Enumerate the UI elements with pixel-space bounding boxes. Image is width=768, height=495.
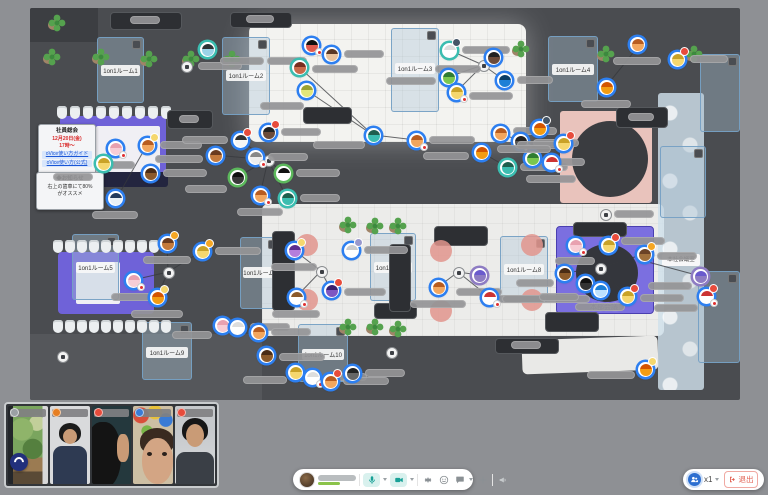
mic-off-badge <box>493 300 501 308</box>
chair <box>113 240 123 253</box>
user-name-pill <box>155 155 203 163</box>
status-badge <box>160 285 169 294</box>
mic-off-badge <box>137 283 145 291</box>
room-name-label: 1on1ルーム9 <box>146 347 188 358</box>
chair <box>70 106 80 119</box>
room-name-label: 1on1ルーム8 <box>504 264 545 275</box>
chair <box>149 320 159 333</box>
user-avatar[interactable] <box>108 191 123 206</box>
avatar-face <box>443 72 455 84</box>
status-badge <box>648 357 657 366</box>
avatar-face <box>232 322 244 334</box>
plant-icon <box>339 216 357 234</box>
user-avatar[interactable] <box>150 290 165 305</box>
avatar-face <box>278 168 290 180</box>
user-avatar[interactable] <box>251 325 266 340</box>
user-name-pill <box>539 293 579 301</box>
plant-icon <box>389 320 407 338</box>
participant-avatar-icon <box>94 408 103 417</box>
status-badge <box>354 238 363 247</box>
avatar-face <box>368 130 380 142</box>
user-name-pill <box>260 102 304 110</box>
user-avatar[interactable] <box>637 247 652 262</box>
user-avatar[interactable] <box>638 362 653 377</box>
audio-spot-icon[interactable] <box>595 263 607 275</box>
user-name-pill <box>526 175 576 183</box>
status-badge <box>205 239 214 248</box>
desk-label-pill <box>246 15 274 23</box>
user-avatar[interactable] <box>323 374 338 389</box>
user-name-pill <box>344 50 384 58</box>
audio-spot-icon[interactable] <box>453 267 465 279</box>
leave-button[interactable]: 退出 <box>724 471 758 488</box>
video-person-face <box>63 429 77 444</box>
user-avatar[interactable] <box>288 365 303 380</box>
avatar-face <box>580 278 592 290</box>
user-name-pill <box>271 328 311 336</box>
user-avatar[interactable] <box>292 60 307 75</box>
avatar-face <box>217 320 229 332</box>
status-badge <box>243 128 252 137</box>
camera-button[interactable] <box>390 473 407 487</box>
user-avatar[interactable] <box>299 83 314 98</box>
user-name-pill <box>243 376 287 384</box>
chair <box>149 240 159 253</box>
room-name-label: 1on1ルーム3 <box>395 63 436 74</box>
user-avatar[interactable] <box>126 273 141 288</box>
room-lock-badge <box>728 57 737 66</box>
status-badge <box>611 233 620 242</box>
user-avatar[interactable] <box>486 50 501 65</box>
chat-bubble-icon <box>455 475 465 485</box>
status-badge <box>271 120 280 129</box>
participant-avatar-icon <box>10 408 19 417</box>
user-name-pill <box>271 263 317 271</box>
zoom-level-caret[interactable] <box>715 478 719 481</box>
video-tile[interactable] <box>175 406 215 484</box>
leave-label: 退出 <box>738 474 753 485</box>
user-avatar[interactable] <box>108 141 123 156</box>
room-name-label: 1on1ルーム5 <box>76 262 116 273</box>
notice-link-official[interactable]: oVice使い方(公式) <box>42 160 92 167</box>
user-name-pill <box>300 194 340 202</box>
mic-off-badge <box>259 160 267 168</box>
chair <box>125 240 135 253</box>
desk-label-pill <box>628 113 654 121</box>
mic-off-badge <box>555 165 563 173</box>
user-avatar[interactable] <box>431 280 446 295</box>
user-avatar[interactable] <box>556 136 571 151</box>
user-avatar[interactable] <box>261 125 276 140</box>
user-avatar[interactable] <box>568 238 583 253</box>
user-avatar[interactable] <box>525 151 540 166</box>
seat-circle <box>430 240 452 262</box>
avatar-face <box>474 270 486 282</box>
room-lock-badge <box>586 39 595 48</box>
avatar-face <box>502 162 514 174</box>
room-lock-badge <box>728 274 737 283</box>
user-avatar[interactable] <box>497 73 512 88</box>
chair <box>83 106 93 119</box>
video-tile[interactable] <box>133 406 173 484</box>
avatar-face <box>488 52 500 64</box>
status-badge <box>630 284 639 293</box>
plant-icon <box>389 217 407 235</box>
desk-label-pill <box>511 341 541 349</box>
office-map-canvas[interactable]: 本部会議 本社会議室 社員総会 12月20日(金) 17時〜 oVice使い方ガ… <box>30 8 740 400</box>
user-name-pill <box>268 153 308 161</box>
divider <box>417 474 418 486</box>
control-toolbar <box>293 469 473 490</box>
participants-icon[interactable] <box>688 473 701 486</box>
avatar-face <box>632 39 644 51</box>
video-name-bar <box>177 408 213 417</box>
plant-icon <box>512 40 530 58</box>
user-name-pill <box>281 128 321 136</box>
meeting-room[interactable]: 1on1ルーム4 <box>548 36 598 102</box>
status-badge <box>709 284 718 293</box>
user-avatar[interactable] <box>248 150 263 165</box>
user-name-pill <box>344 288 386 296</box>
chair <box>125 320 135 333</box>
self-name-label <box>318 475 356 485</box>
chat-options-caret[interactable] <box>469 478 473 481</box>
status-badge <box>150 133 159 142</box>
mic-button[interactable] <box>363 473 380 487</box>
user-avatar[interactable] <box>500 160 515 175</box>
mic-off-badge <box>420 143 428 151</box>
avatar-face <box>253 327 265 339</box>
mic-off-badge <box>315 48 323 56</box>
user-avatar[interactable] <box>276 166 291 181</box>
add-object-button[interactable] <box>476 473 489 487</box>
zoom-level-value: x1 <box>704 475 712 484</box>
chair <box>96 106 106 119</box>
user-avatar[interactable] <box>345 366 360 381</box>
status-badge <box>452 38 461 47</box>
user-name-pill <box>215 247 261 255</box>
user-avatar[interactable] <box>280 191 295 206</box>
mic-icon <box>367 475 377 485</box>
user-name-pill <box>497 145 551 153</box>
user-avatar[interactable] <box>557 266 572 281</box>
user-name-pill <box>640 294 684 302</box>
avatar-face <box>527 153 539 165</box>
meeting-room[interactable]: 1on1ルーム1 <box>97 37 144 103</box>
user-avatar[interactable] <box>160 236 175 251</box>
user-name-pill <box>111 293 155 301</box>
user-avatar[interactable] <box>601 238 616 253</box>
info-line: がオススメ <box>38 191 102 198</box>
user-name-pill <box>555 257 595 265</box>
user-name-pill <box>279 353 325 361</box>
chair <box>77 240 87 253</box>
avatar-face <box>559 268 571 280</box>
chair <box>53 240 63 253</box>
megaphone-icon <box>498 475 508 485</box>
user-avatar[interactable] <box>324 47 339 62</box>
audio-spot-icon[interactable] <box>181 61 193 73</box>
mic-off-badge <box>460 95 468 103</box>
user-name-pill <box>575 303 625 311</box>
exit-icon <box>729 476 736 483</box>
video-name-bar <box>52 408 88 417</box>
user-avatar[interactable] <box>230 170 245 185</box>
video-name-bar <box>94 408 130 417</box>
user-name-pill <box>272 310 320 318</box>
avatar-face <box>433 282 445 294</box>
user-avatar[interactable] <box>287 243 302 258</box>
status-badge <box>297 238 306 247</box>
avatar-face <box>98 158 110 170</box>
user-avatar[interactable] <box>324 283 339 298</box>
chair <box>101 240 111 253</box>
user-avatar[interactable] <box>253 188 268 203</box>
user-avatar[interactable] <box>493 126 508 141</box>
user-avatar[interactable] <box>544 155 559 170</box>
chair <box>148 106 158 119</box>
meeting-room[interactable] <box>700 54 740 132</box>
chair <box>135 106 145 119</box>
user-name-pill <box>312 65 358 73</box>
user-avatar[interactable] <box>143 166 158 181</box>
chair <box>89 240 99 253</box>
divider <box>492 474 493 486</box>
user-avatar[interactable] <box>215 318 230 333</box>
user-avatar[interactable] <box>449 85 464 100</box>
video-person-face <box>186 424 204 447</box>
user-name-pill <box>581 100 631 108</box>
mic-off-badge <box>264 198 272 206</box>
room-lock-badge <box>258 40 267 49</box>
name-pill <box>614 210 654 218</box>
chair <box>53 320 63 333</box>
desk <box>389 244 411 312</box>
user-name-pill <box>469 92 513 100</box>
seat-circle <box>521 234 543 256</box>
user-avatar[interactable] <box>441 70 456 85</box>
meeting-room[interactable] <box>660 146 706 218</box>
user-name-pill <box>220 57 264 65</box>
user-avatar[interactable] <box>366 128 381 143</box>
user-avatar[interactable] <box>304 38 319 53</box>
user-name-pill <box>364 246 408 254</box>
user-avatar[interactable] <box>474 145 489 160</box>
user-avatar[interactable] <box>599 80 614 95</box>
user-name-pill <box>237 208 283 216</box>
plant-icon <box>43 48 61 66</box>
audio-spot-icon[interactable] <box>316 266 328 278</box>
plant-icon <box>366 217 384 235</box>
audio-spot-icon[interactable] <box>163 267 175 279</box>
user-name-pill <box>182 136 228 144</box>
chair <box>65 320 75 333</box>
user-avatar[interactable] <box>96 156 111 171</box>
audio-spot-icon[interactable] <box>386 347 398 359</box>
camera-icon <box>394 475 404 485</box>
avatar-face <box>282 193 294 205</box>
user-avatar[interactable] <box>620 289 635 304</box>
notice-link-guide[interactable]: oVice使い方ガイド <box>42 151 92 158</box>
room-name-label: 1on1ルーム2 <box>226 70 267 81</box>
plant-icon <box>92 48 110 66</box>
self-name-bar <box>318 475 356 481</box>
chat-button[interactable] <box>453 473 466 487</box>
desk <box>303 107 352 124</box>
status-badge <box>542 116 551 125</box>
user-avatar[interactable] <box>305 370 320 385</box>
reaction-button[interactable] <box>437 473 450 487</box>
notice-time: 17時〜 <box>40 143 94 150</box>
avatar-face <box>110 193 122 205</box>
avatar-face <box>499 75 511 87</box>
video-tile[interactable] <box>50 406 90 484</box>
video-person-torso <box>176 452 214 484</box>
user-avatar[interactable] <box>208 148 223 163</box>
mic-off-badge <box>710 299 718 307</box>
chair <box>65 240 75 253</box>
user-name-pill <box>386 77 436 85</box>
avatar-face <box>202 44 214 56</box>
avatar-face <box>595 285 607 297</box>
user-name-pill <box>429 136 475 144</box>
avatar-face <box>326 49 338 61</box>
audio-spot-icon[interactable] <box>57 351 69 363</box>
virtual-office-app: 本部会議 本社会議室 社員総会 12月20日(金) 17時〜 oVice使い方ガ… <box>0 0 768 495</box>
chair <box>109 106 119 119</box>
user-avatar[interactable] <box>693 269 708 284</box>
user-avatar[interactable] <box>195 244 210 259</box>
user-name-pill <box>517 76 553 84</box>
user-avatar[interactable] <box>593 283 608 298</box>
status-badge <box>647 242 656 251</box>
user-avatar[interactable] <box>140 138 155 153</box>
video-name-bar <box>135 408 171 417</box>
room-lock-badge <box>132 40 141 49</box>
user-name-pill <box>172 331 212 339</box>
desk-label-pill <box>179 115 199 123</box>
chair <box>101 320 111 333</box>
session-control-pill: x1 退出 <box>683 469 764 490</box>
mic-off-badge <box>119 151 127 159</box>
user-name-pill <box>53 173 93 181</box>
avatar-face <box>294 62 306 74</box>
chair <box>122 106 132 119</box>
user-name-pill <box>365 369 405 377</box>
user-avatar[interactable] <box>259 348 274 363</box>
user-name-pill <box>296 169 340 177</box>
user-avatar[interactable] <box>482 290 497 305</box>
chair <box>161 320 171 333</box>
desk-label-pill <box>130 16 160 24</box>
camera-options-caret[interactable] <box>410 478 414 481</box>
user-avatar[interactable] <box>230 320 245 335</box>
plant-icon <box>366 318 384 336</box>
self-avatar[interactable] <box>299 472 315 488</box>
self-status-indicator <box>318 482 340 485</box>
meeting-room[interactable]: 1on1ルーム3 <box>391 28 439 112</box>
avatar-face <box>495 128 507 140</box>
plus-icon <box>478 475 488 485</box>
user-avatar[interactable] <box>442 43 457 58</box>
chair <box>89 320 99 333</box>
ovice-logo <box>10 453 28 471</box>
room-lock-badge <box>694 149 703 158</box>
user-avatar[interactable] <box>670 52 685 67</box>
user-avatar[interactable] <box>472 268 487 283</box>
avatar-face <box>210 150 222 162</box>
video-tile[interactable] <box>92 406 132 484</box>
video-call-strip[interactable] <box>4 402 219 488</box>
meeting-room[interactable] <box>698 271 740 363</box>
status-badge <box>680 47 689 56</box>
user-name-pill <box>613 57 661 65</box>
user-avatar[interactable] <box>578 276 593 291</box>
status-badge <box>170 231 179 240</box>
chair <box>137 320 147 333</box>
settings-button[interactable] <box>421 473 434 487</box>
status-badge <box>334 278 343 287</box>
mic-off-badge <box>579 248 587 256</box>
video-tile[interactable] <box>8 406 48 484</box>
desk <box>545 312 599 332</box>
room-lock-badge <box>427 31 436 40</box>
user-avatar[interactable] <box>233 133 248 148</box>
user-name-pill <box>654 304 698 312</box>
avatar-face <box>347 368 359 380</box>
avatar-face <box>476 147 488 159</box>
user-name-pill <box>621 237 665 245</box>
user-name-pill <box>690 55 728 63</box>
avatar-face <box>261 350 273 362</box>
status-badge <box>566 131 575 140</box>
user-name-pill <box>516 279 554 287</box>
user-avatar[interactable] <box>532 121 547 136</box>
user-avatar[interactable] <box>409 133 424 148</box>
avatar-face <box>232 172 244 184</box>
room-name-label: 1on1ルーム4 <box>552 64 594 75</box>
user-avatar[interactable] <box>630 37 645 52</box>
user-name-pill <box>648 282 692 290</box>
user-avatar[interactable] <box>289 290 304 305</box>
plant-icon <box>48 14 66 32</box>
user-avatar[interactable] <box>344 243 359 258</box>
mic-off-badge <box>300 300 308 308</box>
participant-avatar-icon <box>52 408 61 417</box>
user-avatar[interactable] <box>200 42 215 57</box>
audio-spot-icon[interactable] <box>600 209 612 221</box>
notice-title: 社員総会 <box>40 128 94 136</box>
video-name-bar <box>10 408 46 417</box>
avatar-face <box>145 168 157 180</box>
user-name-pill <box>92 211 138 219</box>
notice-board-event[interactable]: 社員総会 12月20日(金) 17時〜 oVice使い方ガイド oVice使い方… <box>38 124 96 178</box>
mic-options-caret[interactable] <box>383 478 387 481</box>
avatar-face <box>301 85 313 97</box>
user-name-pill <box>131 310 183 318</box>
status-badge <box>333 369 342 378</box>
user-name-pill <box>657 252 697 260</box>
plant-icon <box>339 318 357 336</box>
megaphone-button[interactable] <box>496 473 509 487</box>
avatar-face <box>601 82 613 94</box>
plant-icon <box>140 50 158 68</box>
video-person-torso <box>53 446 87 484</box>
user-avatar[interactable] <box>699 289 714 304</box>
chair <box>113 320 123 333</box>
video-person-face <box>117 434 129 462</box>
user-name-pill <box>313 141 365 149</box>
